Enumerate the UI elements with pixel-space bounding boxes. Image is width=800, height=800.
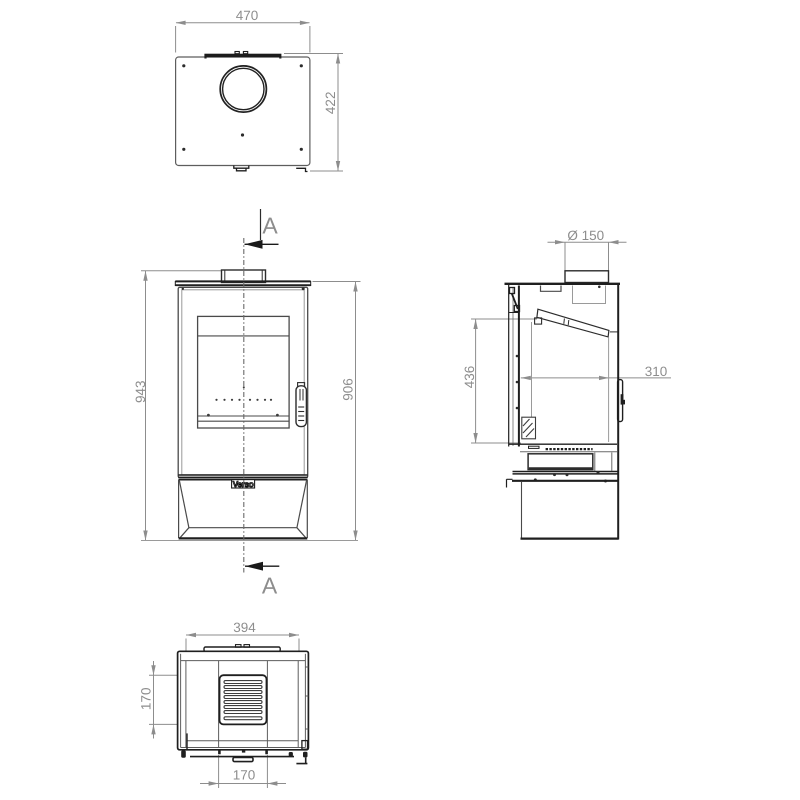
svg-text:170: 170 xyxy=(233,768,256,783)
svg-text:470: 470 xyxy=(236,8,259,23)
svg-text:436: 436 xyxy=(462,366,477,389)
svg-text:A: A xyxy=(262,213,278,239)
svg-text:170: 170 xyxy=(139,688,154,711)
svg-text:943: 943 xyxy=(133,380,148,403)
svg-text:422: 422 xyxy=(323,92,338,115)
svg-text:394: 394 xyxy=(233,620,256,635)
svg-text:A: A xyxy=(262,573,278,599)
svg-text:Ø 150: Ø 150 xyxy=(567,228,604,243)
svg-text:310: 310 xyxy=(645,364,668,379)
svg-text:906: 906 xyxy=(340,378,355,401)
svg-text:Verso: Verso xyxy=(233,479,254,489)
